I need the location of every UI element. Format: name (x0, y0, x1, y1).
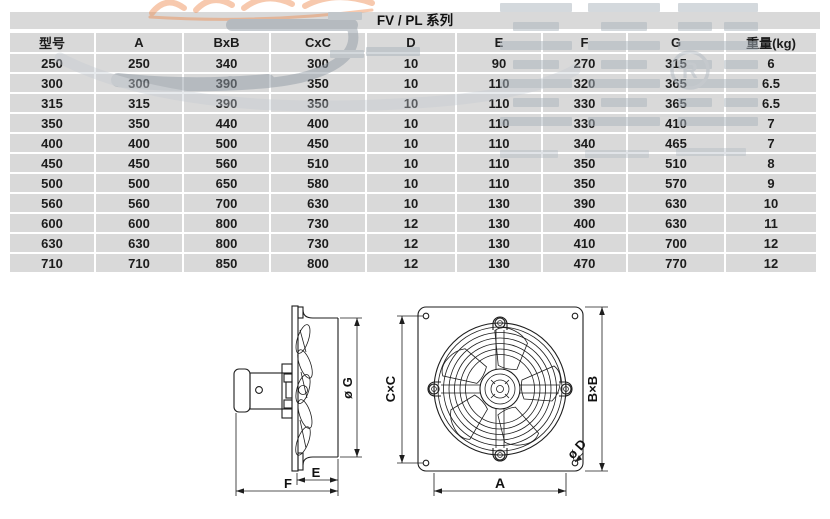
table-cell: 90 (457, 54, 541, 72)
table-cell: 315 (10, 94, 94, 112)
table-cell: 410 (628, 114, 724, 132)
table-cell: 770 (628, 254, 724, 272)
table-cell: 500 (96, 174, 182, 192)
table-cell: 400 (543, 214, 626, 232)
dim-label-cxc: C×C (383, 375, 398, 402)
table-cell: 315 (96, 94, 182, 112)
table-cell: 110 (457, 174, 541, 192)
fan-guard (434, 323, 566, 455)
table-cell: 580 (271, 174, 365, 192)
table-cell: 6.5 (726, 94, 816, 112)
table-cell: 12 (726, 254, 816, 272)
dim-label-g: ø G (340, 377, 355, 399)
table-cell: 500 (10, 174, 94, 192)
table-cell: 390 (184, 94, 269, 112)
table-cell: 10 (367, 154, 455, 172)
table-cell: 400 (96, 134, 182, 152)
table-cell: 630 (10, 234, 94, 252)
table-cell: 340 (184, 54, 269, 72)
spec-table: 型号 A BxB CxC D E F G 重量(kg) 250250340300… (8, 31, 818, 274)
table-body: 2502503403001090270315630030039035010110… (10, 54, 816, 272)
table-cell: 510 (628, 154, 724, 172)
table-cell: 400 (271, 114, 365, 132)
table-cell: 110 (457, 154, 541, 172)
table-cell: 6.5 (726, 74, 816, 92)
table-row: 500500650580101103505709 (10, 174, 816, 192)
impeller-side (293, 323, 316, 457)
table-row: 6006008007301213040063011 (10, 214, 816, 232)
side-view-drawing: ø G E F (234, 306, 362, 496)
table-cell: 600 (96, 214, 182, 232)
col-header-g: G (628, 33, 724, 52)
table-row: 315315390350101103303656.5 (10, 94, 816, 112)
table-row: 350350440400101103304107 (10, 114, 816, 132)
table-cell: 630 (628, 214, 724, 232)
table-cell: 560 (10, 194, 94, 212)
spec-table-section: FV / PL 系列 型号 A BxB CxC D E F G 重量(kg) (10, 12, 820, 274)
col-header-e: E (457, 33, 541, 52)
table-cell: 10 (367, 114, 455, 132)
dim-a: A (434, 473, 566, 496)
table-cell: 560 (184, 154, 269, 172)
table-cell: 650 (184, 174, 269, 192)
table-cell: 630 (96, 234, 182, 252)
table-cell: 700 (184, 194, 269, 212)
hub (480, 369, 520, 409)
table-cell: 10 (367, 74, 455, 92)
table-cell: 465 (628, 134, 724, 152)
table-cell: 630 (271, 194, 365, 212)
table-cell: 110 (457, 134, 541, 152)
struts (428, 317, 572, 461)
dim-cxc: C×C (383, 316, 423, 463)
table-cell: 500 (184, 134, 269, 152)
table-cell: 10 (367, 134, 455, 152)
table-cell: 300 (10, 74, 94, 92)
table-cell: 390 (543, 194, 626, 212)
col-header-weight: 重量(kg) (726, 33, 816, 52)
table-cell: 8 (726, 154, 816, 172)
table-cell: 9 (726, 174, 816, 192)
table-cell: 320 (543, 74, 626, 92)
table-cell: 10 (367, 54, 455, 72)
dim-d: ø D (564, 436, 589, 462)
table-cell: 10 (726, 194, 816, 212)
table-cell: 365 (628, 74, 724, 92)
datasheet-page: ø G E F (0, 0, 830, 519)
table-cell: 410 (543, 234, 626, 252)
dim-g: ø G (340, 318, 362, 457)
table-cell: 110 (457, 74, 541, 92)
table-cell: 12 (367, 254, 455, 272)
table-cell: 110 (457, 114, 541, 132)
table-row: 25025034030010902703156 (10, 54, 816, 72)
table-cell: 630 (628, 194, 724, 212)
table-row: 450450560510101103505108 (10, 154, 816, 172)
table-cell: 450 (271, 134, 365, 152)
motor-outline (234, 364, 292, 418)
col-header-cxc: CxC (271, 33, 365, 52)
col-header-model: 型号 (10, 33, 94, 52)
table-cell: 710 (96, 254, 182, 272)
table-cell: 730 (271, 234, 365, 252)
dim-f: F (236, 413, 338, 496)
table-cell: 300 (271, 54, 365, 72)
table-cell: 11 (726, 214, 816, 232)
col-header-f: F (543, 33, 626, 52)
header-row: 型号 A BxB CxC D E F G 重量(kg) (10, 33, 816, 52)
table-cell: 10 (367, 194, 455, 212)
series-title: FV / PL 系列 (10, 12, 820, 29)
table-cell: 350 (543, 174, 626, 192)
table-cell: 12 (367, 214, 455, 232)
dim-label-d: ø D (564, 436, 589, 462)
table-cell: 710 (10, 254, 94, 272)
corner-holes (423, 313, 578, 466)
dim-label-e: E (312, 465, 321, 480)
table-cell: 730 (271, 214, 365, 232)
table-cell: 10 (367, 174, 455, 192)
table-cell: 700 (628, 234, 724, 252)
table-cell: 450 (10, 154, 94, 172)
front-view-drawing: C×C B×B A ø D (383, 307, 608, 496)
table-cell: 440 (184, 114, 269, 132)
table-cell: 350 (271, 94, 365, 112)
dim-label-bxb: B×B (585, 376, 600, 402)
table-cell: 315 (628, 54, 724, 72)
table-cell: 7 (726, 134, 816, 152)
table-cell: 300 (96, 74, 182, 92)
dim-label-f: F (284, 476, 292, 491)
table-row: 6306308007301213041070012 (10, 234, 816, 252)
table-cell: 250 (96, 54, 182, 72)
table-cell: 560 (96, 194, 182, 212)
table-cell: 365 (628, 94, 724, 112)
dim-label-a: A (495, 475, 505, 491)
wall-plate (292, 306, 303, 471)
table-cell: 510 (271, 154, 365, 172)
table-cell: 600 (10, 214, 94, 232)
table-row: 7107108508001213047077012 (10, 254, 816, 272)
table-cell: 6 (726, 54, 816, 72)
table-cell: 130 (457, 194, 541, 212)
table-cell: 570 (628, 174, 724, 192)
table-cell: 350 (10, 114, 94, 132)
table-cell: 130 (457, 214, 541, 232)
table-cell: 250 (10, 54, 94, 72)
table-cell: 400 (10, 134, 94, 152)
table-row: 400400500450101103404657 (10, 134, 816, 152)
table-cell: 110 (457, 94, 541, 112)
table-cell: 10 (367, 94, 455, 112)
table-cell: 330 (543, 114, 626, 132)
table-cell: 450 (96, 154, 182, 172)
table-cell: 330 (543, 94, 626, 112)
table-cell: 12 (367, 234, 455, 252)
table-row: 300300390350101103203656.5 (10, 74, 816, 92)
col-header-bxb: BxB (184, 33, 269, 52)
table-cell: 130 (457, 254, 541, 272)
col-header-d: D (367, 33, 455, 52)
table-row: 5605607006301013039063010 (10, 194, 816, 212)
table-cell: 7 (726, 114, 816, 132)
table-cell: 350 (543, 154, 626, 172)
table-cell: 12 (726, 234, 816, 252)
table-cell: 800 (184, 214, 269, 232)
table-cell: 850 (184, 254, 269, 272)
col-header-a: A (96, 33, 182, 52)
table-cell: 390 (184, 74, 269, 92)
table-cell: 470 (543, 254, 626, 272)
table-cell: 350 (96, 114, 182, 132)
mounting-plate (418, 307, 583, 471)
table-cell: 130 (457, 234, 541, 252)
table-cell: 350 (271, 74, 365, 92)
table-cell: 270 (543, 54, 626, 72)
table-cell: 800 (184, 234, 269, 252)
table-cell: 800 (271, 254, 365, 272)
table-cell: 340 (543, 134, 626, 152)
